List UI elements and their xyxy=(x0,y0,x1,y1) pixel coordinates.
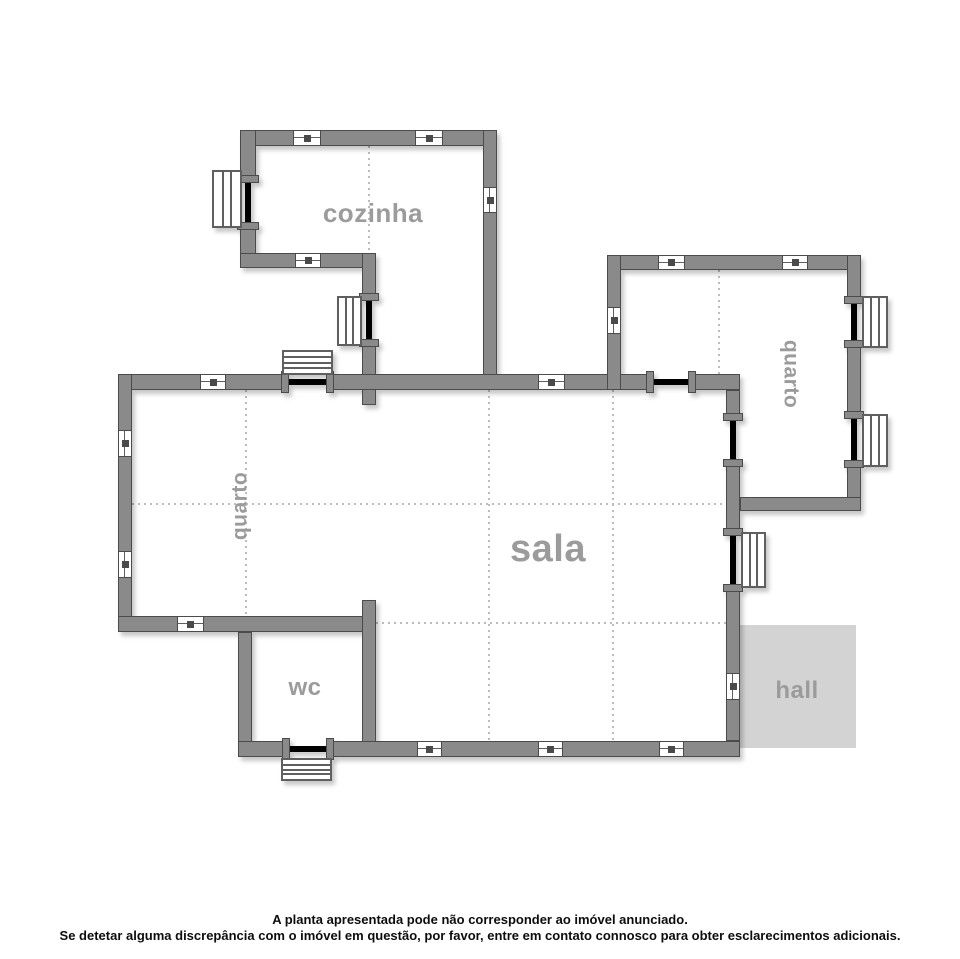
window-opening xyxy=(851,419,857,460)
wall-cap xyxy=(326,738,334,760)
vent-symbol xyxy=(118,551,132,578)
symbol-line xyxy=(345,298,347,344)
symbol-line xyxy=(352,298,354,344)
vent-symbol xyxy=(295,253,321,268)
wall-cap xyxy=(281,371,289,393)
vent-symbol xyxy=(200,374,226,390)
dotted-gridline xyxy=(376,622,726,624)
wall-cap xyxy=(326,371,334,393)
window-opening xyxy=(245,183,251,222)
wall-segment xyxy=(847,341,861,418)
wall-segment xyxy=(607,255,861,270)
vent-symbol xyxy=(607,307,621,334)
disclaimer-line-1: A planta apresentada pode não correspond… xyxy=(0,912,960,928)
symbol-line xyxy=(878,298,880,346)
dotted-gridline xyxy=(245,390,247,616)
wall-segment xyxy=(238,632,252,757)
dotted-gridline xyxy=(368,146,370,374)
wall-cap xyxy=(844,340,864,348)
symbol-line xyxy=(756,534,758,586)
vent-symbol xyxy=(118,430,132,457)
vent-symbol xyxy=(538,741,563,757)
wall-segment xyxy=(689,374,740,390)
hall-area-layer xyxy=(0,0,960,959)
wall-cap xyxy=(282,738,290,760)
door-opening xyxy=(654,379,688,385)
vent-symbol xyxy=(538,374,565,390)
room-label-quarto-left: quarto xyxy=(230,472,251,540)
wall-cap xyxy=(237,222,259,230)
disclaimer: A planta apresentada pode não correspond… xyxy=(0,912,960,944)
wall-cap xyxy=(359,293,379,301)
wall-segment xyxy=(240,130,256,182)
room-label-wc: wc xyxy=(288,676,321,700)
wall-segment xyxy=(362,340,376,405)
vent-symbol xyxy=(659,741,684,757)
wall-segment xyxy=(362,600,376,757)
vent-symbol xyxy=(417,741,442,757)
disclaimer-line-2: Se detetar alguma discrepância com o imó… xyxy=(0,928,960,944)
wall-cap xyxy=(723,584,743,592)
wall-segment xyxy=(240,222,256,268)
vent-symbol xyxy=(293,130,321,146)
symbol-line xyxy=(230,172,232,226)
wall-segment xyxy=(847,255,861,303)
wall-segment xyxy=(847,461,861,511)
wall-segment xyxy=(726,460,740,535)
window-symbol-quarto-right-2 xyxy=(862,414,888,467)
symbol-line xyxy=(284,356,331,358)
wall-segment xyxy=(118,374,288,390)
wall-segment xyxy=(483,130,497,390)
hall-floor-area xyxy=(740,625,856,748)
wall-segment xyxy=(238,741,289,757)
room-labels-layer: cozinhaquartoquartosalawchall xyxy=(0,0,960,959)
wall-segment xyxy=(607,255,621,390)
walls-layer xyxy=(0,0,960,959)
wall-segment xyxy=(240,130,497,146)
wall-cap xyxy=(844,411,864,419)
wall-cap xyxy=(844,460,864,468)
symbol-line xyxy=(878,416,880,465)
wall-segment xyxy=(726,390,740,420)
window-symbol-cozinha-left xyxy=(212,170,242,228)
room-label-quarto-right: quarto xyxy=(781,340,802,408)
window-opening xyxy=(851,304,857,340)
vent-symbol xyxy=(483,187,497,213)
symbol-line xyxy=(749,534,751,586)
window-symbol-quarto-right-1 xyxy=(862,296,888,348)
wall-cap xyxy=(646,371,654,393)
dotted-gridline xyxy=(612,390,614,741)
symbol-line xyxy=(870,298,872,346)
wall-cap xyxy=(723,413,743,421)
floor-plan-canvas: cozinhaquartoquartosalawchall xyxy=(0,0,960,959)
wall-segment xyxy=(327,374,653,390)
vent-symbol xyxy=(726,673,740,700)
window-opening xyxy=(730,536,736,584)
wall-cap xyxy=(723,459,743,467)
wall-segment xyxy=(327,741,740,757)
wall-segment xyxy=(118,616,374,632)
wall-cap xyxy=(359,339,379,347)
steps-symbol-north-door xyxy=(282,350,333,375)
window-symbol-cozinha-inner xyxy=(337,296,362,346)
vent-symbol xyxy=(658,255,685,270)
symbol-line xyxy=(222,172,224,226)
room-label-sala: sala xyxy=(510,530,586,568)
symbol-line xyxy=(284,367,331,369)
dotted-gridline xyxy=(132,503,726,505)
symbol-line xyxy=(284,362,331,364)
symbol-line xyxy=(283,764,330,766)
symbol-line xyxy=(283,773,330,775)
wall-segment xyxy=(362,253,376,300)
vent-symbol xyxy=(415,130,443,146)
steps-symbol-wc-door xyxy=(281,758,332,781)
window-opening xyxy=(366,301,372,339)
wall-segment xyxy=(740,497,861,511)
symbol-line xyxy=(283,769,330,771)
vent-symbol xyxy=(782,255,808,270)
wall-segment xyxy=(118,374,132,632)
dotted-gridline xyxy=(488,390,490,741)
window-symbol-east-wall xyxy=(741,532,766,588)
door-opening xyxy=(289,379,326,385)
wall-cap xyxy=(688,371,696,393)
door-opening xyxy=(290,746,326,752)
wall-cap xyxy=(844,296,864,304)
room-label-hall: hall xyxy=(775,679,818,703)
wall-cap xyxy=(237,175,259,183)
wall-segment xyxy=(240,253,374,268)
symbol-line xyxy=(870,416,872,465)
door-opening xyxy=(730,421,736,459)
wall-cap xyxy=(723,528,743,536)
room-label-cozinha: cozinha xyxy=(323,200,423,226)
vent-symbol xyxy=(177,616,204,632)
dotted-gridline xyxy=(718,270,720,374)
wall-segment xyxy=(726,585,740,741)
grid-dotted-layer xyxy=(0,0,960,959)
